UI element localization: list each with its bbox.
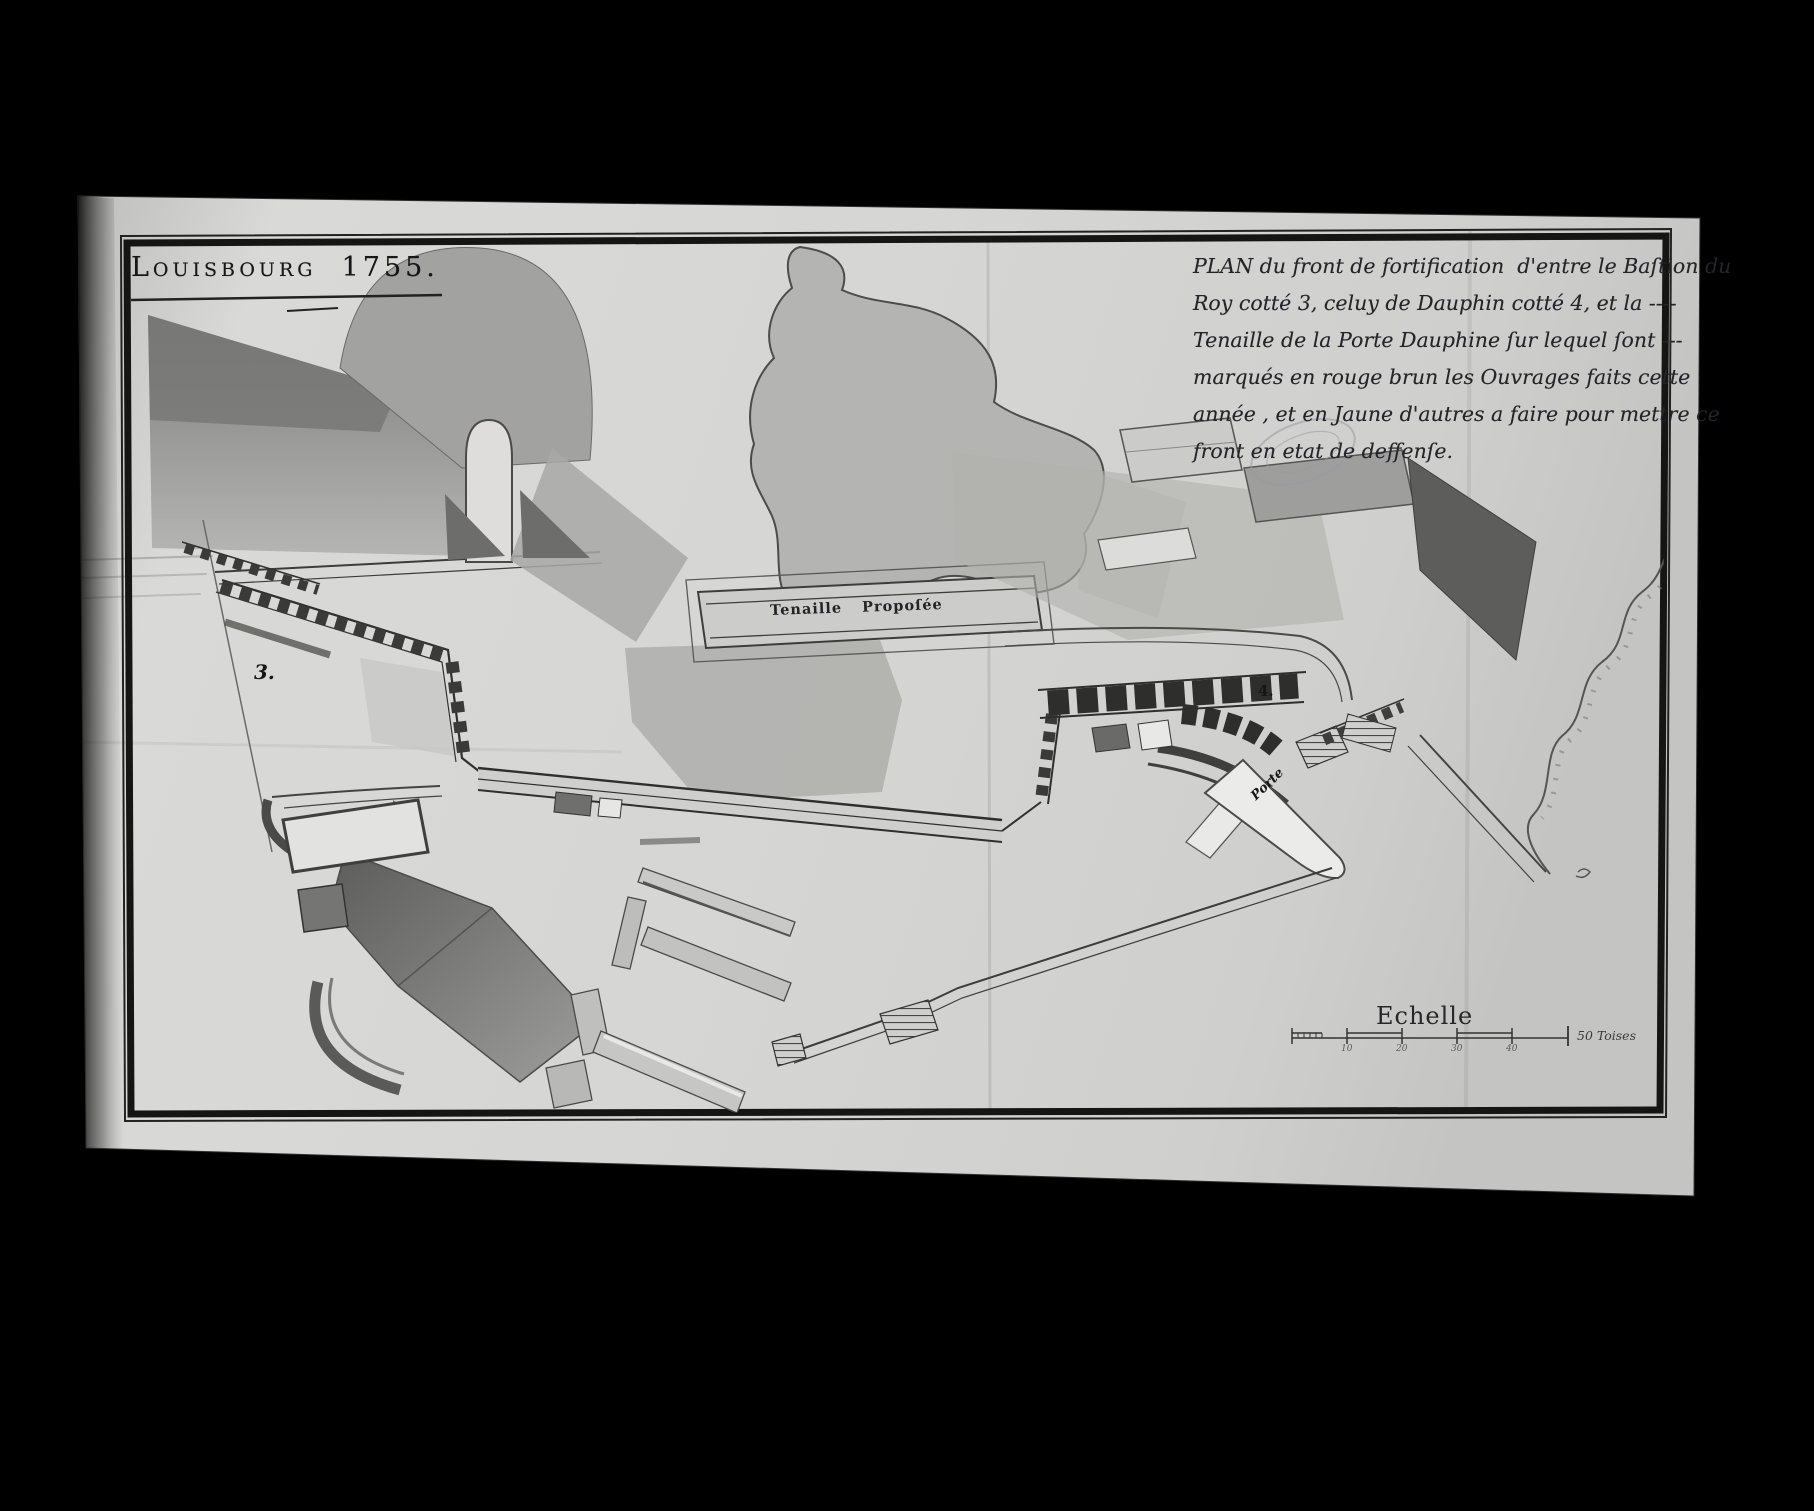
guerite — [598, 798, 622, 818]
cartouche: PLAN du front de fortification d'entre l… — [1193, 248, 1675, 470]
scale-title: Echelle — [1376, 1002, 1473, 1030]
bastion-roy-number: 3. — [254, 660, 275, 684]
cartouche-line: front en etat de deffenſe. — [1193, 433, 1675, 470]
map-drawing — [0, 0, 1814, 1511]
scale-tick-label: 10 — [1341, 1044, 1352, 1054]
cartouche-line: marqués en rouge brun les Ouvrages faits… — [1193, 359, 1675, 396]
scale-tick-label: 40 — [1506, 1044, 1517, 1054]
scanned-map-page: Louisbourg 1755. PLAN du front de fortif… — [0, 0, 1814, 1511]
cartouche-line: Roy cotté 3, celuy de Dauphin cotté 4, e… — [1193, 285, 1675, 322]
postern — [554, 792, 592, 816]
scale-tick-label: 30 — [1451, 1044, 1462, 1054]
cartouche-line: PLAN du front de fortification d'entre l… — [1193, 248, 1675, 285]
cartouche-line: année , et en Jaune d'autres a faire pou… — [1193, 396, 1675, 433]
cartouche-line: Tenaille de la Porte Dauphine ſur lequel… — [1193, 322, 1675, 359]
bastion-dauphin-number: 4. — [1258, 682, 1274, 700]
scale-tick-label: 20 — [1396, 1044, 1407, 1054]
map-title: Louisbourg 1755. — [131, 252, 439, 283]
small-dark-square — [298, 884, 348, 932]
scale-end-label: 50 Toises — [1577, 1028, 1636, 1043]
